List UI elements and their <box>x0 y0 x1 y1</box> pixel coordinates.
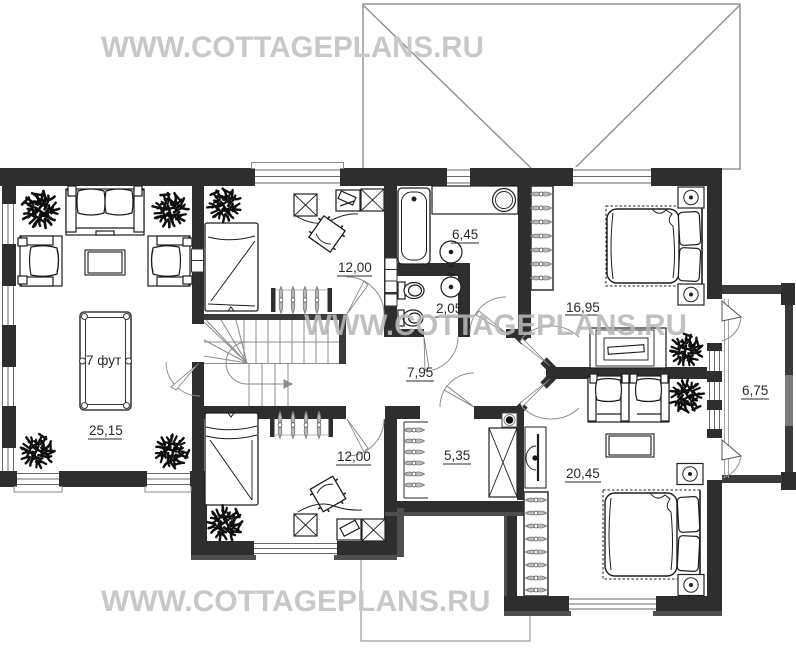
svg-text:20,45: 20,45 <box>566 466 600 481</box>
svg-text:6,75: 6,75 <box>742 383 768 398</box>
svg-text:6,45: 6,45 <box>452 227 478 242</box>
svg-text:12,00: 12,00 <box>338 260 372 275</box>
svg-text:7 фут: 7 фут <box>86 353 121 368</box>
svg-text:25,15: 25,15 <box>89 423 123 438</box>
svg-text:12,00: 12,00 <box>337 449 371 464</box>
svg-text:7,95: 7,95 <box>407 365 433 380</box>
svg-text:5,35: 5,35 <box>444 448 470 463</box>
